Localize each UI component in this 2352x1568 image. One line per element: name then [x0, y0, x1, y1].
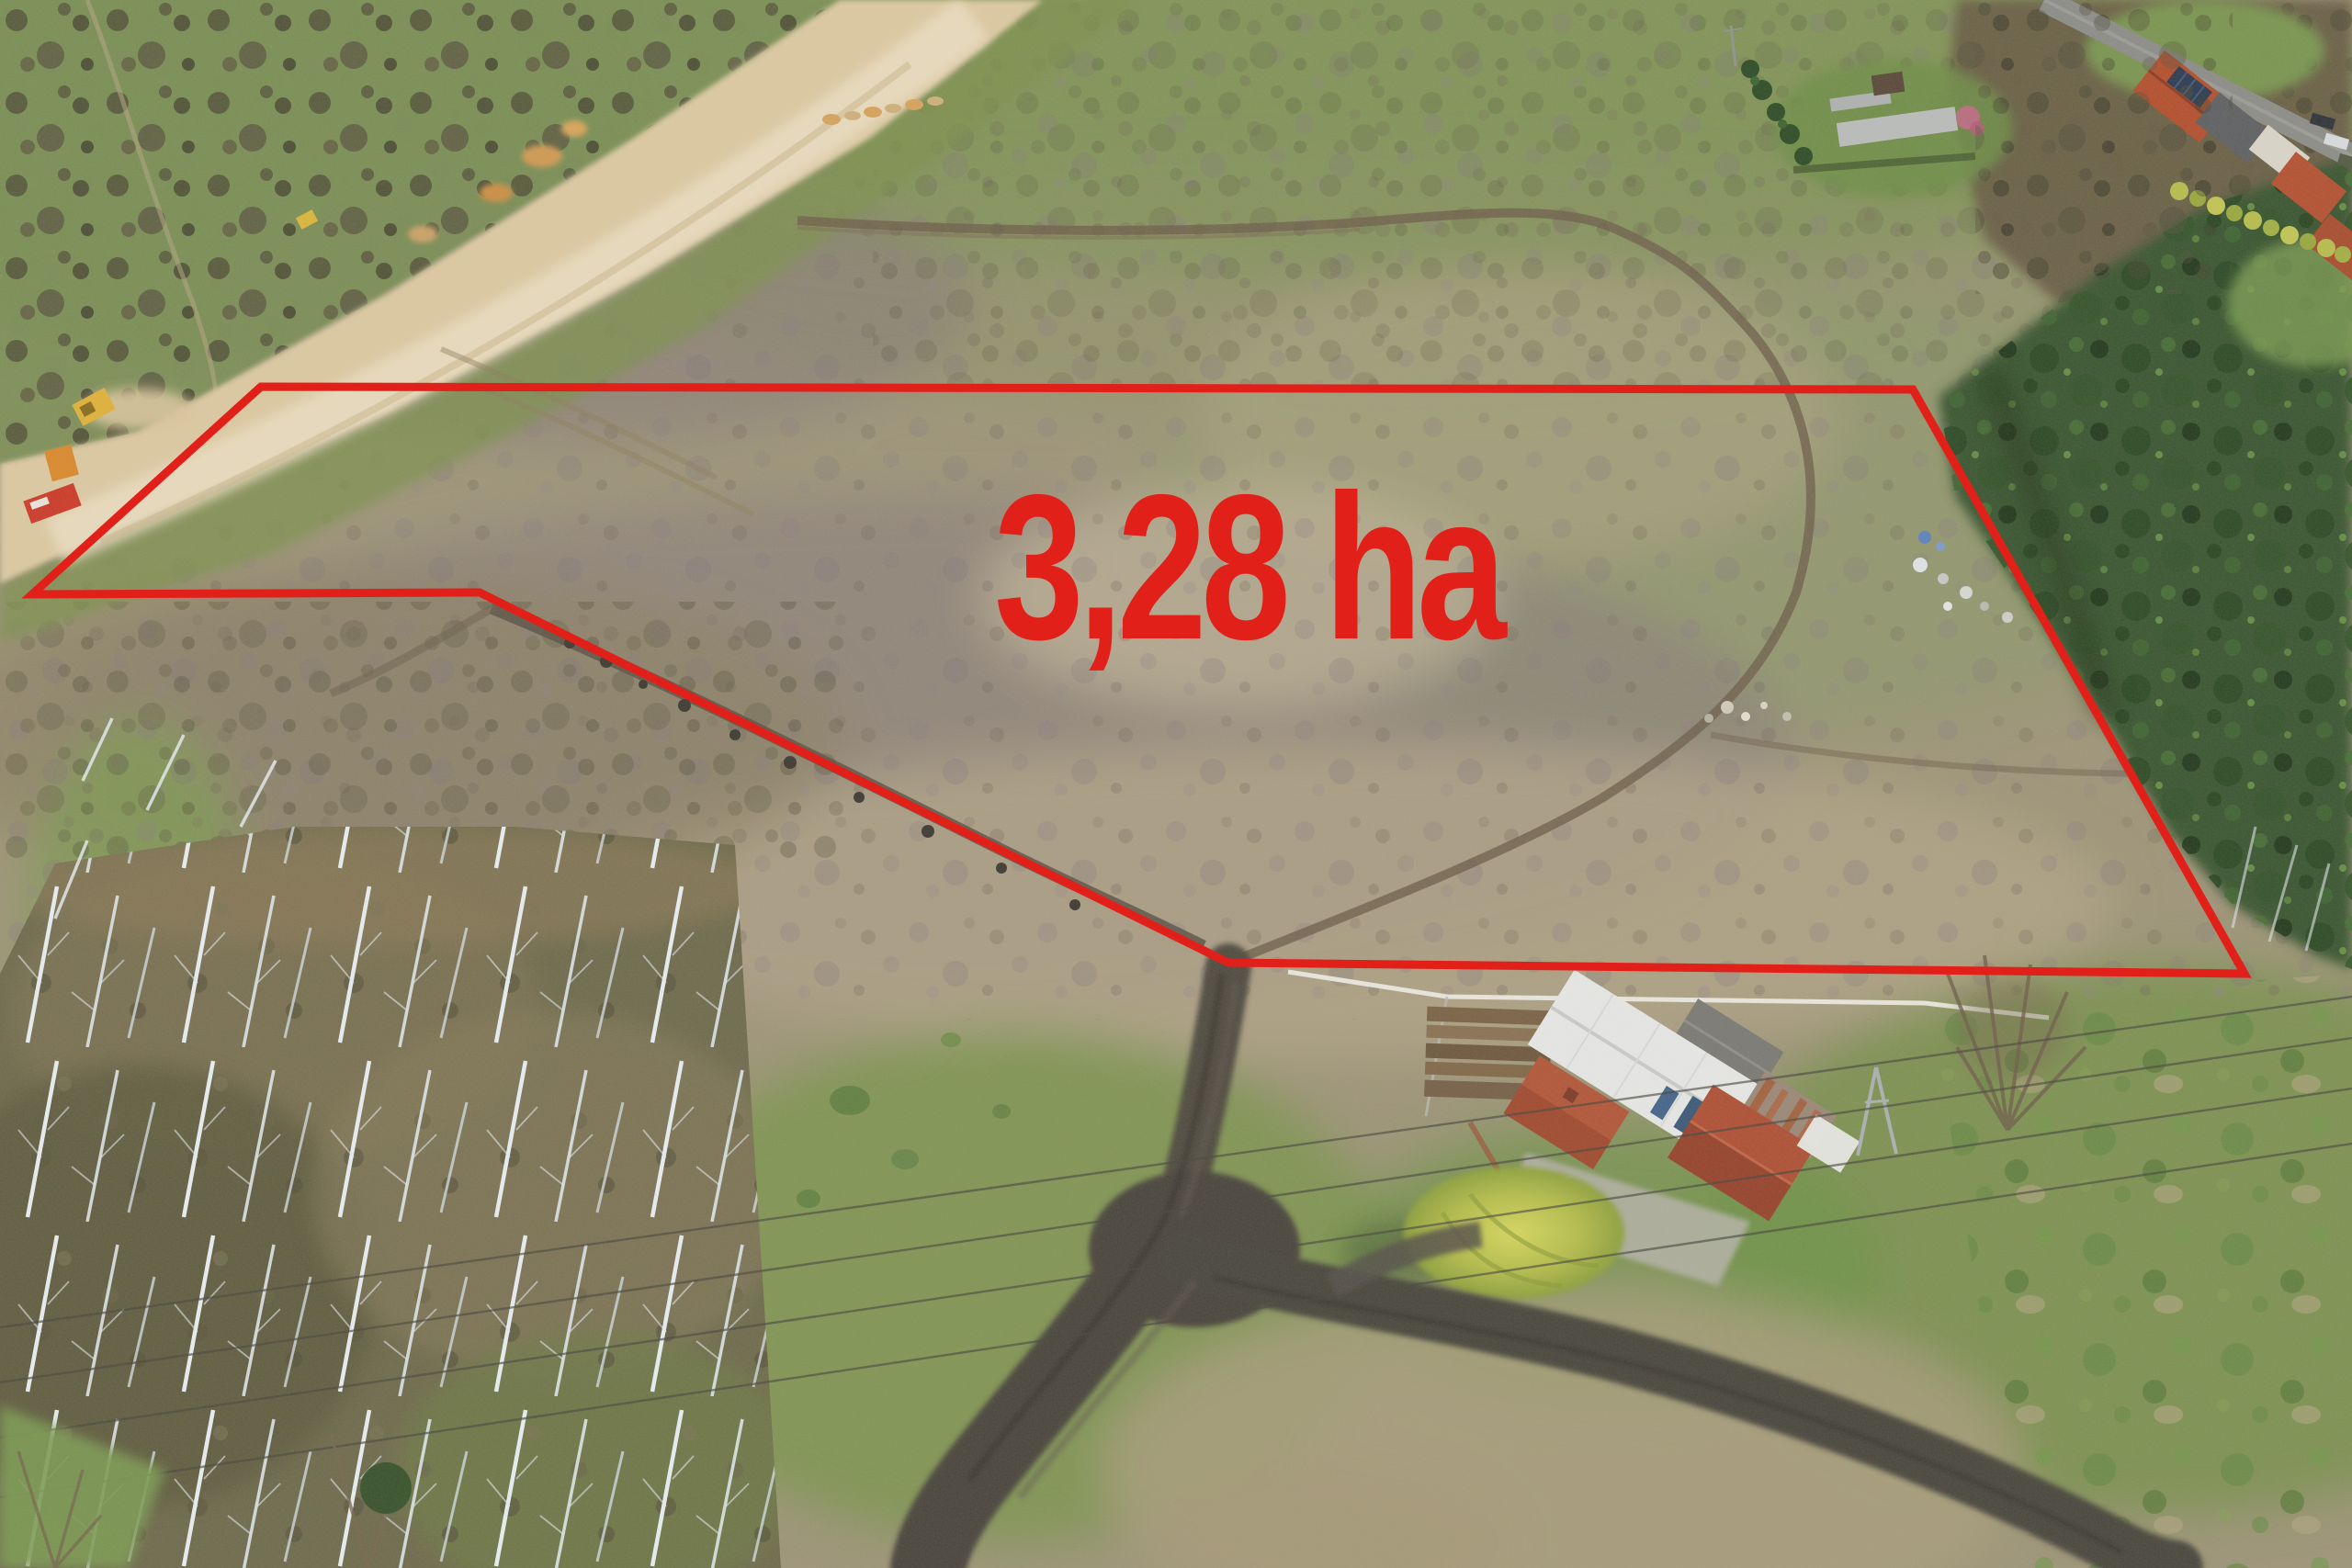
- aerial-photo-canvas: [0, 0, 2352, 1568]
- area-label: 3,28 ha: [994, 464, 1500, 671]
- aerial-photo: 3,28 ha: [0, 0, 2352, 1568]
- photo-grain: [0, 0, 2352, 1568]
